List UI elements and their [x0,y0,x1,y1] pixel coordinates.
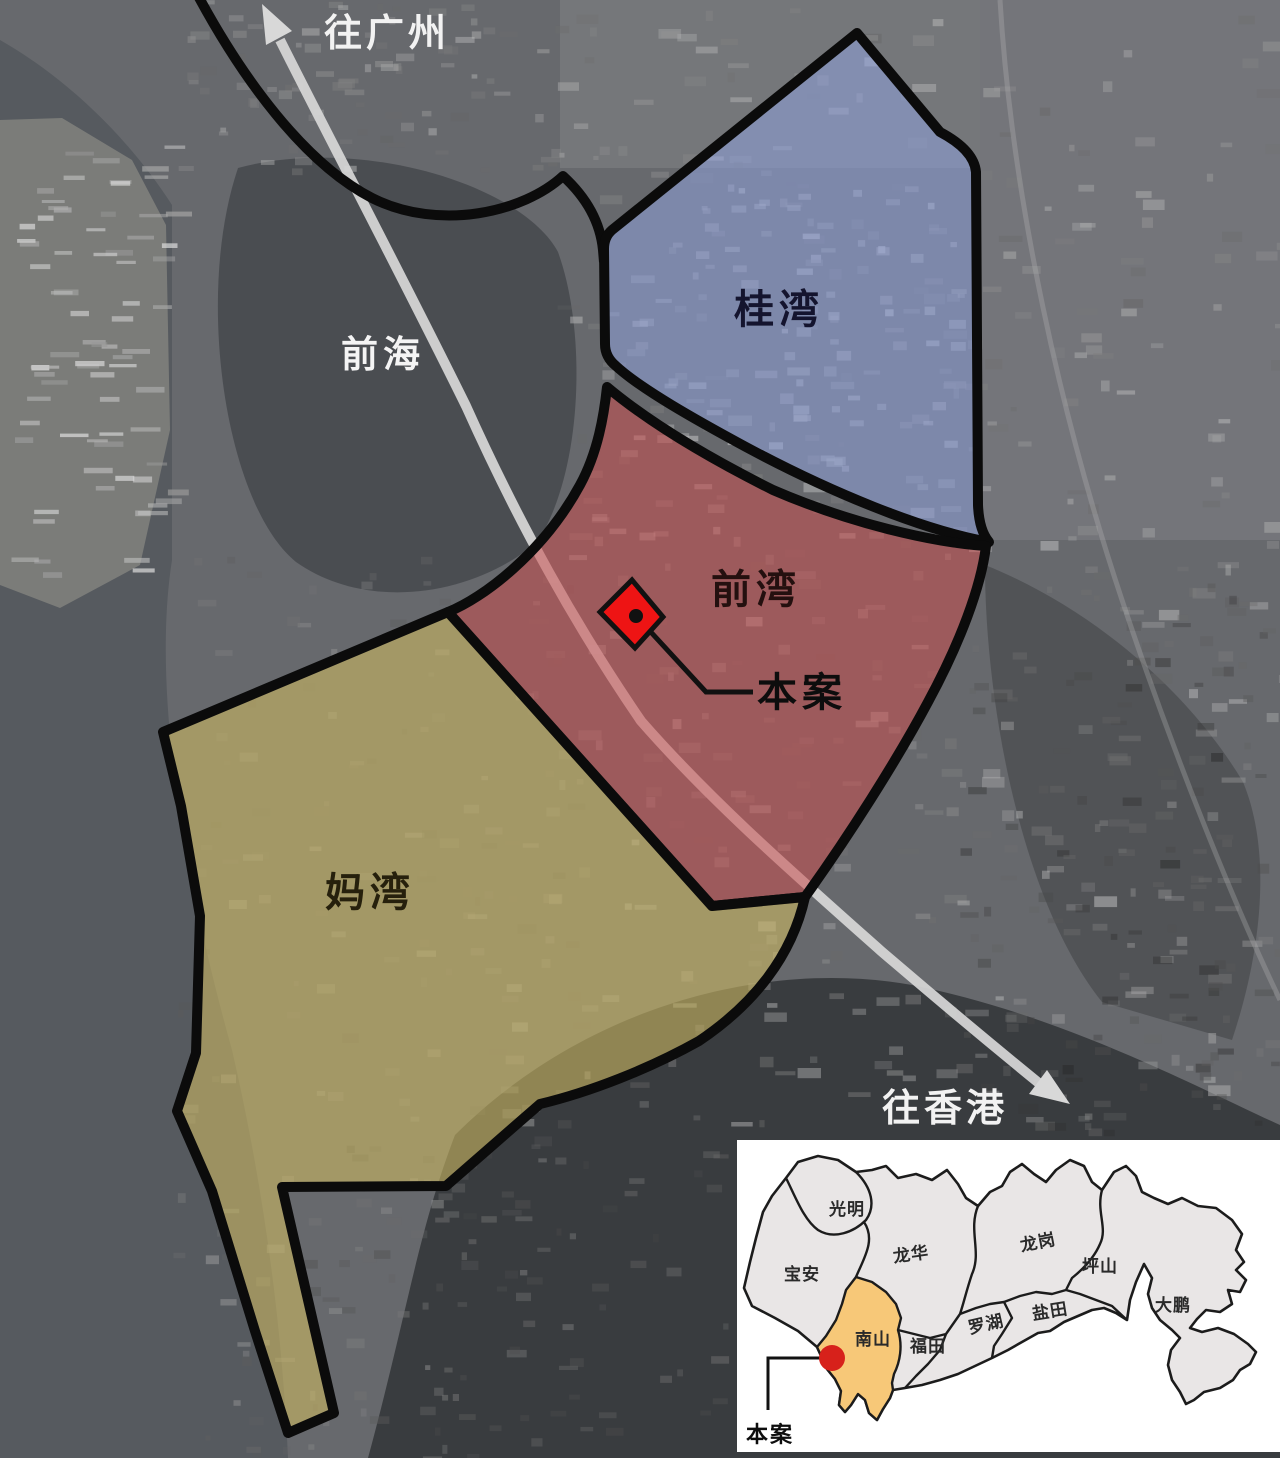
label-pingshan: 坪山 [1082,1257,1118,1277]
label-qianhai: 前海 [341,333,425,376]
inset-map: 光明 宝安 龙华 龙岗 坪山 盐田 罗湖 福田 南山 大鹏 本案 [737,1140,1280,1452]
label-guangming: 光明 [828,1199,865,1220]
label-nanshan: 南山 [855,1329,891,1350]
label-futian: 福田 [909,1336,946,1357]
label-baoan: 宝安 [784,1264,820,1285]
satellite-map-figure: 往广州 前海 桂湾 前湾 本案 妈湾 往香港 光明 宝安 龙华 龙岗 坪山 盐田… [0,0,1280,1458]
site-marker-dot-icon [629,609,643,623]
label-to-guangzhou: 往广州 [324,11,450,55]
label-guiwan: 桂湾 [734,287,824,333]
label-qianwan: 前湾 [711,567,801,613]
inset-site-dot-icon [819,1345,845,1371]
label-to-hongkong: 往香港 [882,1086,1008,1130]
label-site: 本案 [757,670,847,716]
label-dapeng: 大鹏 [1155,1295,1191,1316]
label-inset-site: 本案 [746,1422,794,1448]
map-canvas: 往广州 前海 桂湾 前湾 本案 妈湾 往香港 光明 宝安 龙华 龙岗 坪山 盐田… [0,0,1280,1458]
label-mawan: 妈湾 [325,870,415,916]
